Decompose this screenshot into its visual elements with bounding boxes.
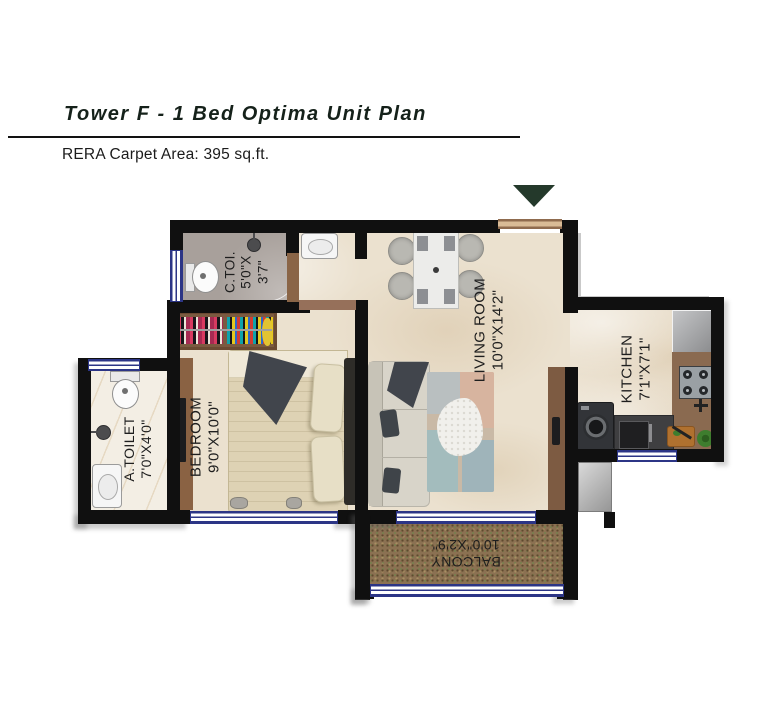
slippers <box>230 497 248 509</box>
washbasin-fixture <box>301 233 338 259</box>
title-underline <box>8 136 520 138</box>
atoilet-toilet-fixture <box>112 379 139 409</box>
floor-plan-page: Tower F - 1 Bed Optima Unit Plan RERA Ca… <box>0 0 784 709</box>
wall <box>355 233 367 259</box>
bed-pillow <box>310 435 345 503</box>
atoilet-shower-pipe <box>91 431 98 433</box>
washing-machine <box>577 402 614 451</box>
duct-shaft <box>578 462 612 512</box>
rug <box>427 372 494 492</box>
wall <box>78 358 91 524</box>
ctoi-window <box>170 250 183 302</box>
wall <box>711 297 724 462</box>
wardrobe-clothes <box>262 318 272 346</box>
stove <box>679 366 712 399</box>
bedroom-window <box>190 511 338 524</box>
atoilet-toilet-drain <box>122 388 128 394</box>
wardrobe <box>172 311 277 350</box>
ctoi-shower-head <box>247 238 261 252</box>
room-label-bedroom: BEDROOM9'0"X10'0" <box>188 397 225 477</box>
sofa-throw <box>387 362 429 408</box>
living-balcony-window <box>396 511 536 524</box>
wall <box>355 300 368 513</box>
dining-chair <box>456 234 484 262</box>
kitchen-faucet <box>649 424 652 442</box>
sofa <box>368 361 430 507</box>
sink-counter <box>614 415 674 452</box>
sofa-pillow <box>382 467 402 494</box>
room-label-ctoi: C.TOI.5'0"X3'7" <box>222 251 271 293</box>
wall <box>286 220 299 256</box>
bedroom-door <box>299 300 356 310</box>
kitchen-window <box>617 450 677 462</box>
room-label-living: LIVING ROOM10'0"X14'2" <box>472 278 509 382</box>
room-label-balcony: BALCONY10'0"X2'9" <box>431 536 501 570</box>
room-label-atoilet: A.TOILET7'0"X4'0" <box>121 416 155 481</box>
slippers <box>286 497 302 509</box>
counter-valve <box>699 399 702 412</box>
page-title: Tower F - 1 Bed Optima Unit Plan <box>64 103 427 126</box>
exterior-notch <box>578 233 709 299</box>
wall <box>167 300 180 524</box>
cutting-board <box>667 426 695 447</box>
tv-icon <box>179 398 186 462</box>
entry-arrow-icon <box>513 185 555 207</box>
atoilet-shower-head <box>96 425 111 440</box>
dining-table <box>413 231 459 309</box>
wall <box>563 367 578 513</box>
rera-carpet-area: RERA Carpet Area: 395 sq.ft. <box>62 146 269 164</box>
bed-pillow <box>310 363 347 433</box>
door-handle <box>552 417 560 445</box>
atoilet-window <box>88 359 140 371</box>
entrance-door <box>498 219 562 229</box>
room-label-kitchen: KITCHEN7'1"X7'1" <box>619 335 656 404</box>
fridge <box>672 310 712 353</box>
wall <box>604 512 615 528</box>
atoilet-sink <box>92 464 122 508</box>
kitchen-sink <box>619 421 649 449</box>
dining-chair <box>388 272 416 300</box>
wall <box>170 220 500 233</box>
balcony-railing-window <box>370 584 564 597</box>
ctoi-door <box>287 253 299 302</box>
wall <box>78 510 190 524</box>
ctoi-toilet-drain <box>200 273 206 279</box>
dining-chair <box>388 237 416 265</box>
sofa-pillow <box>379 409 400 438</box>
wall <box>563 297 724 310</box>
